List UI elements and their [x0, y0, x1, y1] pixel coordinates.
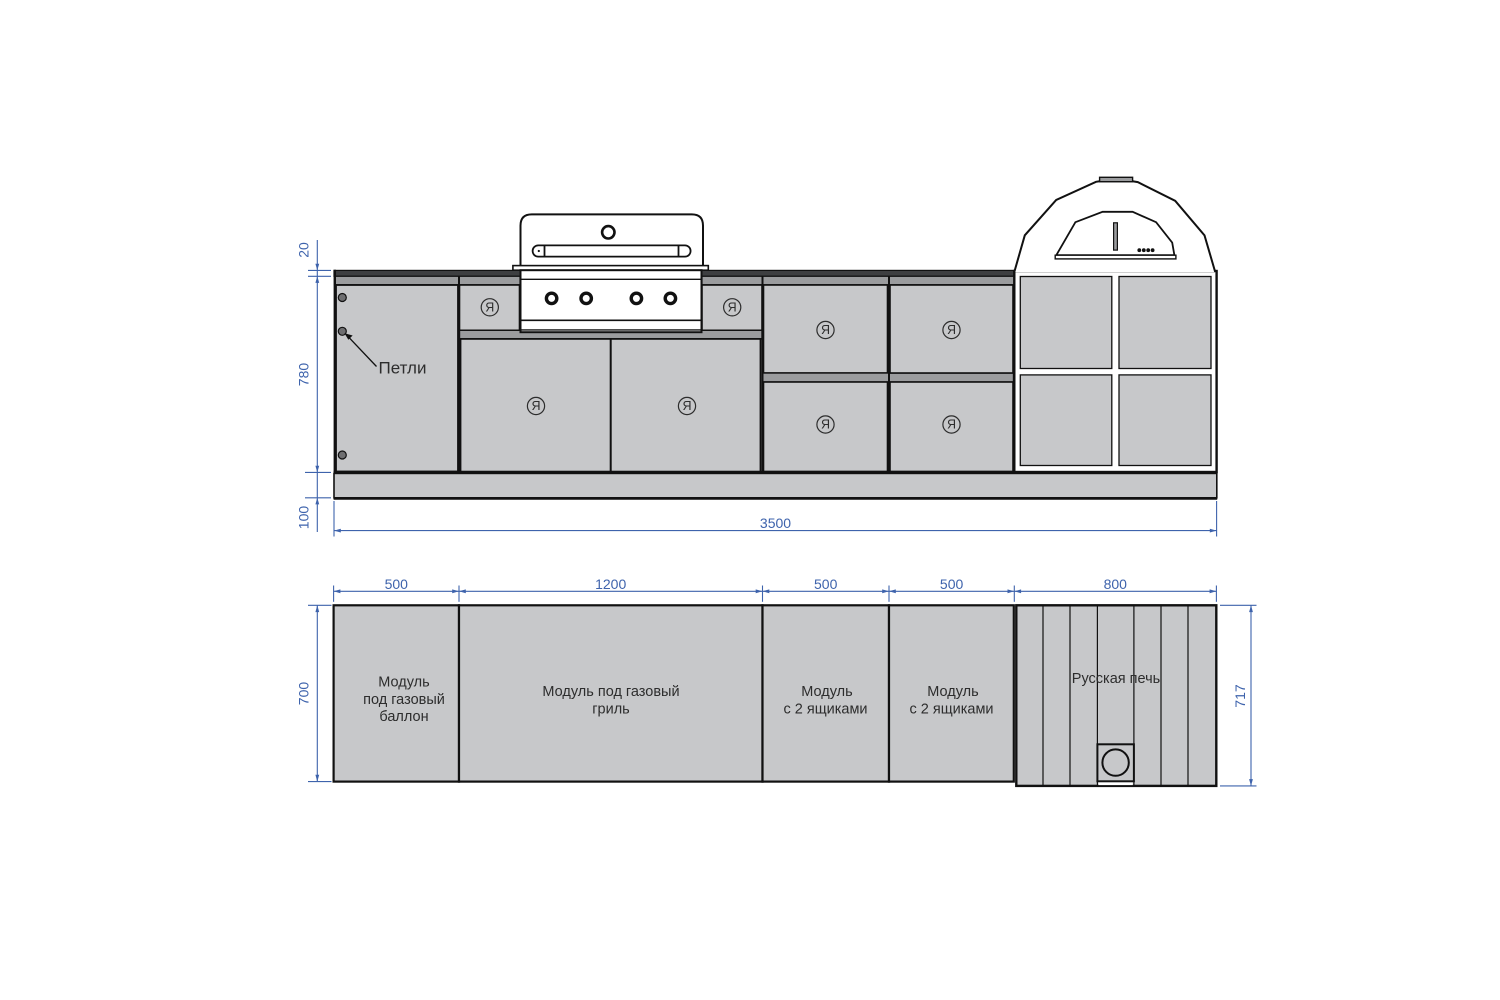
svg-text:Я: Я [485, 300, 494, 314]
svg-text:717: 717 [1232, 684, 1248, 708]
svg-text:Модуль: Модуль [801, 684, 852, 700]
svg-text:700: 700 [296, 682, 312, 706]
svg-text:Русская печь: Русская печь [1072, 671, 1160, 687]
svg-text:Я: Я [728, 300, 737, 314]
svg-text:Модуль: Модуль [378, 674, 429, 690]
svg-text:780: 780 [296, 363, 312, 387]
svg-text:500: 500 [814, 576, 838, 592]
svg-text:Я: Я [821, 418, 830, 432]
svg-text:Я: Я [531, 399, 540, 413]
svg-text:Модуль: Модуль [927, 684, 978, 700]
svg-text:20: 20 [296, 242, 312, 258]
svg-text:гриль: гриль [592, 702, 629, 718]
svg-text:Я: Я [947, 418, 956, 432]
svg-text:3500: 3500 [760, 515, 791, 531]
svg-text:Я: Я [682, 399, 691, 413]
svg-text:Я: Я [821, 323, 830, 337]
svg-text:Модуль под газовый: Модуль под газовый [542, 684, 679, 700]
svg-text:100: 100 [296, 506, 312, 530]
svg-text:Петли: Петли [379, 359, 427, 378]
svg-text:Я: Я [947, 323, 956, 337]
svg-text:1200: 1200 [595, 576, 626, 592]
svg-text:под газовый: под газовый [363, 692, 445, 708]
svg-text:500: 500 [385, 576, 409, 592]
svg-text:с 2 ящиками: с 2 ящиками [909, 702, 993, 718]
svg-text:с 2 ящиками: с 2 ящиками [783, 702, 867, 718]
svg-text:баллон: баллон [379, 709, 428, 725]
svg-text:500: 500 [940, 576, 964, 592]
svg-text:800: 800 [1104, 576, 1128, 592]
